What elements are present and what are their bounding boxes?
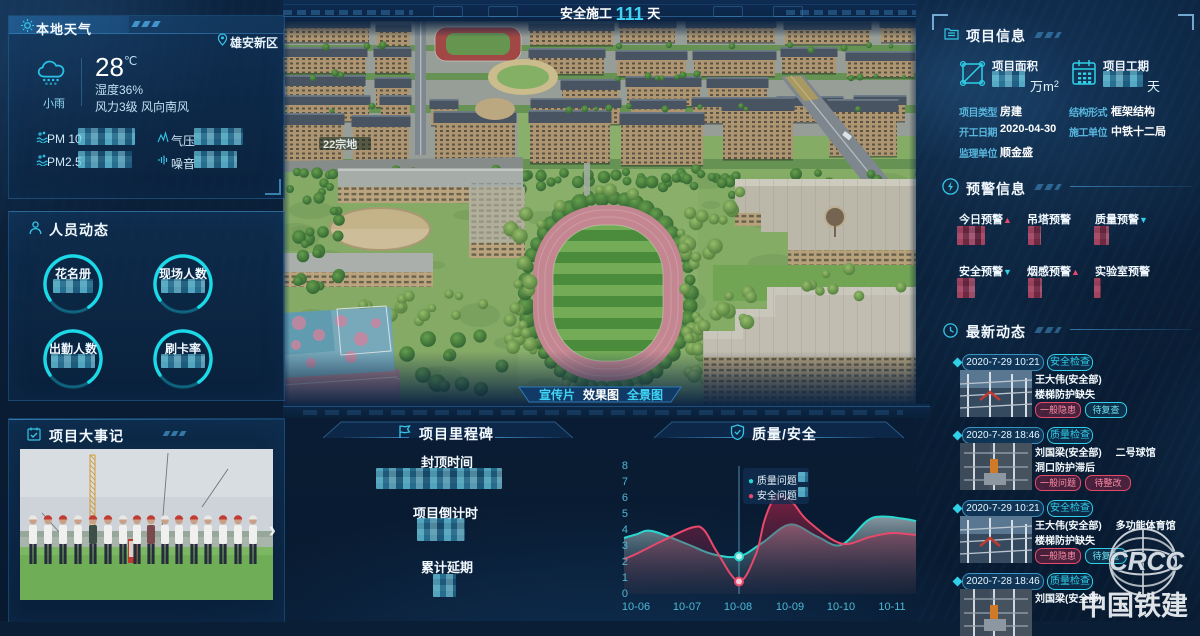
svg-text:效果图: 效果图 — [583, 387, 619, 402]
svg-text:宣传片: 宣传片 — [539, 387, 575, 402]
svg-text:中国铁建: 中国铁建 — [1080, 591, 1188, 621]
svg-text:全景图: 全景图 — [626, 387, 663, 402]
svg-text:CRCC: CRCC — [1109, 546, 1185, 576]
